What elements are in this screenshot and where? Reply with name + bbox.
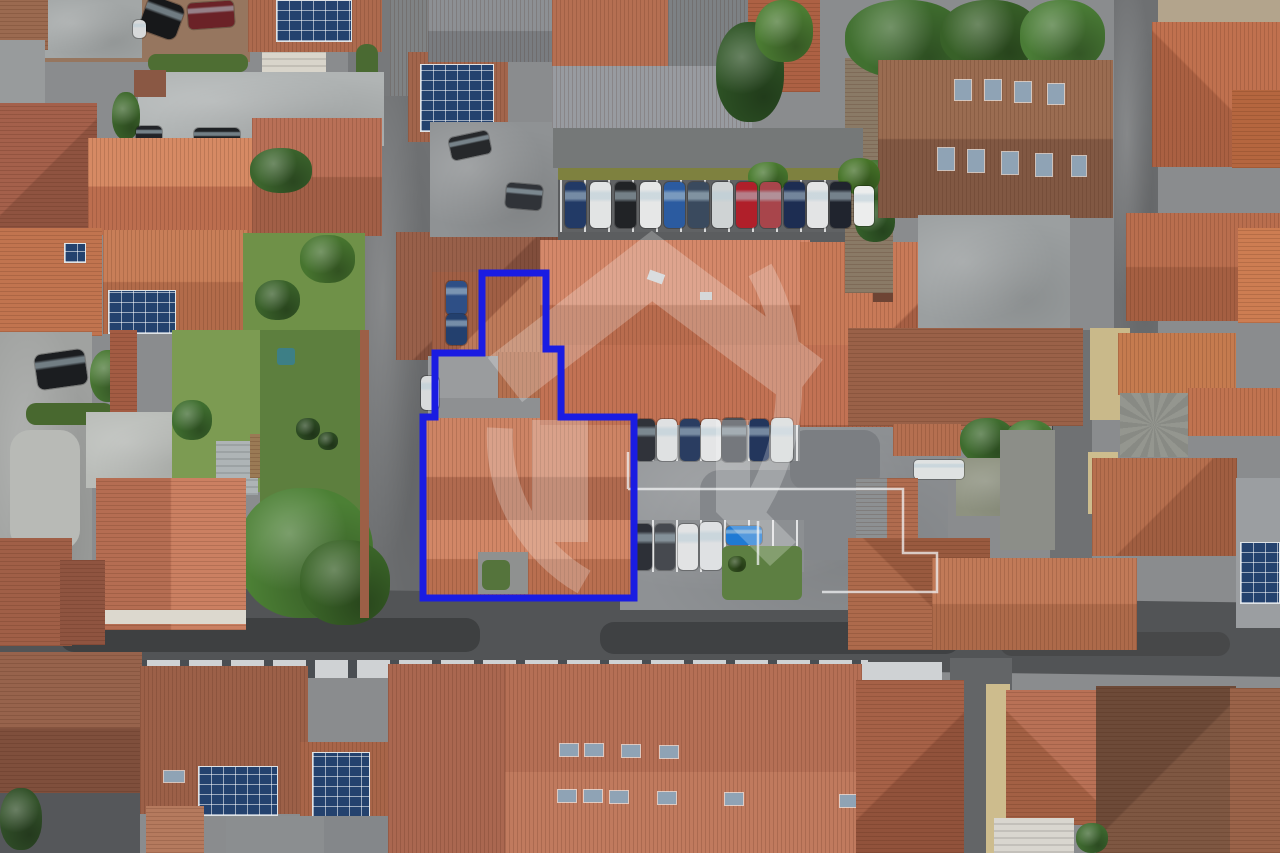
skylight bbox=[585, 744, 603, 756]
car-parked bbox=[736, 182, 757, 228]
roof-rowhouse-west-wing bbox=[388, 664, 508, 853]
green-patch-lot bbox=[722, 546, 802, 600]
roof-brick-strip bbox=[110, 330, 137, 414]
car-maroon bbox=[187, 0, 235, 29]
tree bbox=[255, 280, 300, 320]
skylight bbox=[1072, 156, 1086, 176]
roof-property-main bbox=[424, 418, 634, 536]
skylight bbox=[610, 791, 628, 803]
skylight bbox=[164, 771, 184, 782]
teal-object bbox=[277, 348, 295, 365]
roof-terra-small-rm bbox=[893, 424, 961, 456]
car-parked bbox=[680, 419, 700, 461]
gravel-light-patch bbox=[10, 430, 80, 550]
awning-white-south bbox=[994, 818, 1074, 853]
car-parked bbox=[657, 419, 677, 461]
roof-band-right-middle bbox=[848, 328, 1083, 426]
car-blue-street bbox=[446, 281, 467, 315]
car-parked bbox=[830, 182, 851, 228]
solar-array bbox=[1240, 542, 1280, 604]
roof-hip-east-1 bbox=[1092, 458, 1237, 556]
car-blue-street bbox=[446, 314, 467, 345]
car-parked bbox=[700, 522, 722, 570]
solar-array bbox=[108, 290, 176, 334]
car-parked bbox=[807, 182, 828, 228]
roof-west-d bbox=[0, 228, 102, 336]
tree-large bbox=[300, 540, 390, 625]
skylight bbox=[660, 746, 678, 758]
roof-narrow-left bbox=[60, 560, 105, 645]
garden-brick-wall bbox=[360, 330, 369, 618]
car-parked bbox=[632, 524, 652, 570]
car-dark bbox=[505, 182, 543, 210]
roof-west-b bbox=[88, 138, 263, 235]
roof-rowhouse-upper bbox=[505, 664, 866, 774]
roof-old-southwest bbox=[0, 652, 142, 804]
car-parked bbox=[854, 186, 874, 226]
green-patch-southeast bbox=[1076, 823, 1108, 853]
tree bbox=[172, 400, 212, 440]
roof-edge-southeast bbox=[1230, 688, 1280, 853]
car-parked bbox=[712, 182, 733, 228]
skylight bbox=[1048, 84, 1064, 104]
courtyard-grey-northeast bbox=[918, 215, 1070, 333]
roof-property-main-south bbox=[424, 520, 634, 598]
car-parked bbox=[771, 418, 793, 462]
solar-array bbox=[276, 0, 352, 42]
green-patch-property bbox=[482, 560, 510, 590]
aerial-photo bbox=[0, 0, 1280, 853]
skylight bbox=[1002, 152, 1018, 174]
van-parked bbox=[722, 418, 746, 462]
car-blue-parked bbox=[726, 526, 762, 545]
solar-array bbox=[198, 766, 278, 816]
car-parked bbox=[635, 419, 655, 461]
car-parked bbox=[701, 419, 721, 461]
roof-bright-east bbox=[1118, 333, 1236, 395]
skylight bbox=[725, 793, 743, 805]
courtyard-pattern bbox=[1120, 393, 1188, 457]
tree bbox=[250, 148, 312, 193]
skylight bbox=[658, 792, 676, 804]
car-parked bbox=[760, 182, 781, 228]
roof-east-mid-bright bbox=[1238, 228, 1280, 323]
car-parked bbox=[655, 524, 675, 570]
skylight bbox=[622, 745, 640, 757]
alley-top-center bbox=[553, 128, 863, 168]
roof-orange-small-east bbox=[1188, 388, 1280, 436]
tree-bright bbox=[755, 0, 813, 62]
roof-dark-southeast bbox=[1096, 686, 1236, 853]
yard-grey-south bbox=[324, 816, 390, 853]
eave-white bbox=[96, 610, 246, 624]
roof-rowhouse-lower bbox=[505, 772, 866, 853]
skylight bbox=[840, 795, 856, 807]
van-white-street bbox=[421, 376, 439, 410]
skylight bbox=[560, 744, 578, 756]
skylight bbox=[584, 790, 602, 802]
solar-array bbox=[312, 752, 370, 818]
roof-orange-topright-2 bbox=[1232, 90, 1280, 168]
bush-row bbox=[0, 788, 42, 850]
rooftop-debris bbox=[700, 292, 712, 300]
roof-salmon-east bbox=[932, 558, 1137, 650]
solar-array-small bbox=[64, 243, 86, 263]
terrace-edge-grey bbox=[0, 40, 45, 110]
roof-hip-southeast-1 bbox=[856, 680, 964, 853]
skylight bbox=[558, 790, 576, 802]
car-parked bbox=[640, 182, 661, 228]
car-parked bbox=[688, 182, 709, 228]
yard-grey-south bbox=[226, 816, 324, 853]
photo-scene bbox=[0, 0, 1280, 853]
roof-top-center-terra bbox=[552, 0, 670, 72]
car-parked bbox=[784, 182, 805, 228]
car-parked bbox=[615, 182, 636, 228]
car-black-parked bbox=[34, 349, 88, 391]
terrace-grey-topleft bbox=[42, 0, 142, 58]
car-parked bbox=[565, 182, 586, 228]
roof-hip-southeast-2 bbox=[1006, 690, 1100, 825]
bush bbox=[728, 556, 746, 572]
skylight bbox=[968, 150, 984, 172]
roof-house-bottomleft bbox=[96, 478, 246, 630]
skylight bbox=[1036, 154, 1052, 176]
roof-top-center-grey bbox=[428, 0, 553, 62]
van-white-parked bbox=[914, 460, 964, 479]
shed-brick bbox=[134, 70, 166, 97]
skylight bbox=[955, 80, 971, 100]
skylight bbox=[938, 148, 954, 170]
roof-west-a bbox=[0, 103, 97, 231]
tree bbox=[300, 235, 355, 283]
yard-grey-gap bbox=[1000, 430, 1055, 550]
car-parked bbox=[749, 419, 769, 461]
skylight bbox=[985, 80, 1001, 100]
car-parked bbox=[590, 182, 611, 228]
roof-small-south bbox=[146, 806, 204, 853]
car-parked bbox=[678, 524, 698, 570]
skylight bbox=[1015, 82, 1031, 102]
car-white-small bbox=[133, 20, 146, 38]
car-parked bbox=[664, 182, 685, 228]
bush bbox=[318, 432, 338, 450]
bush bbox=[296, 418, 320, 440]
